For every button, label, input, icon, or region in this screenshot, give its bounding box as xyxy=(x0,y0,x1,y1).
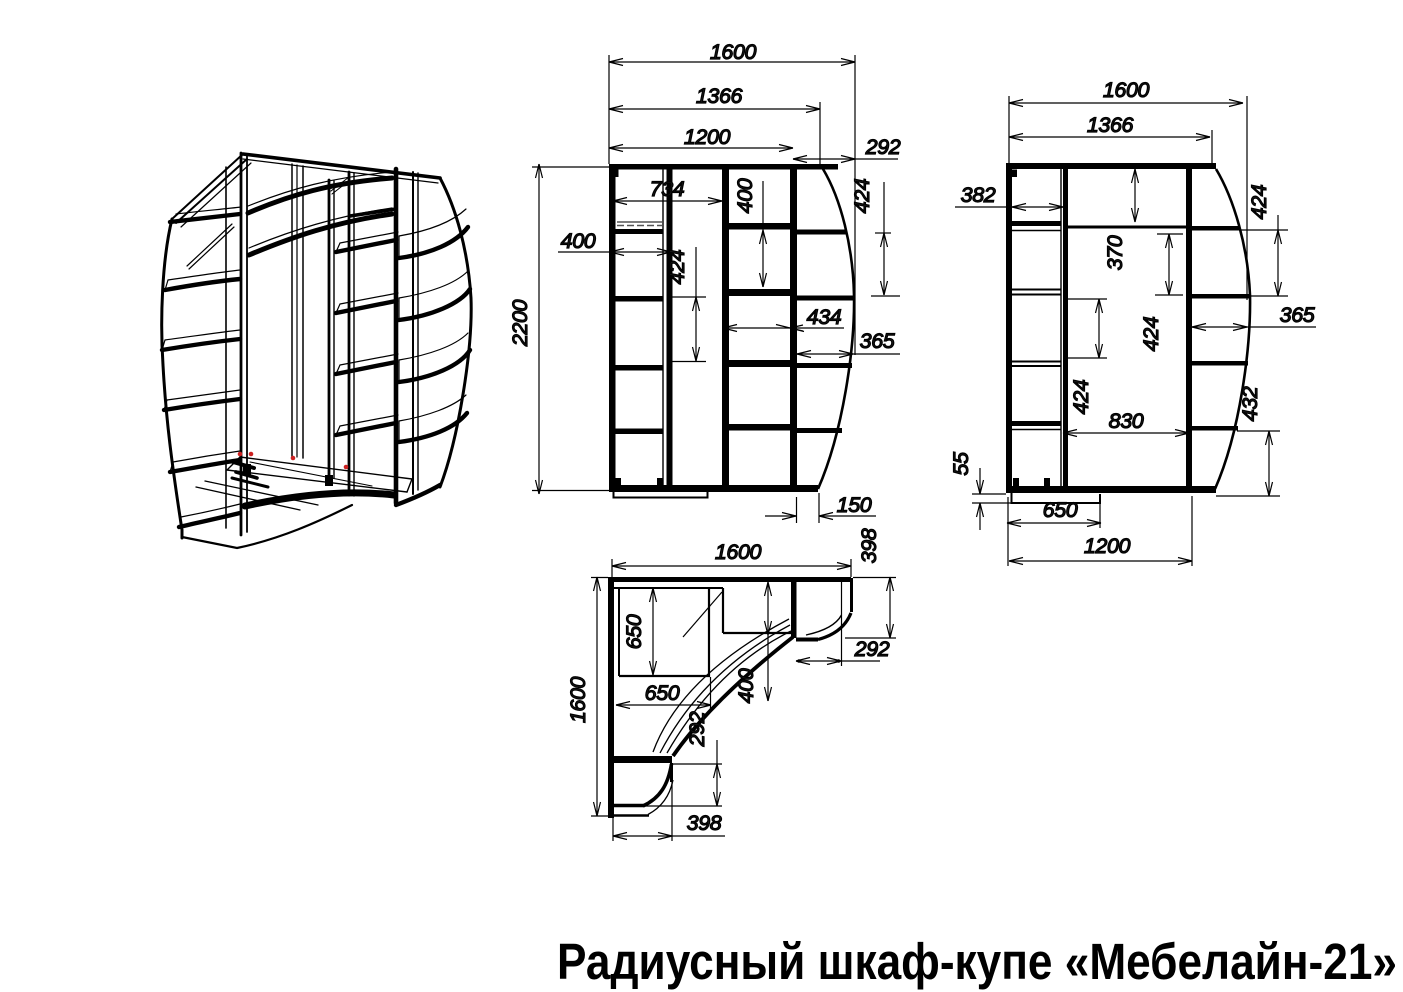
svg-text:400: 400 xyxy=(561,229,596,253)
svg-text:1600: 1600 xyxy=(710,40,757,64)
svg-text:1200: 1200 xyxy=(684,125,731,149)
svg-text:650: 650 xyxy=(645,681,680,705)
svg-text:55: 55 xyxy=(949,451,973,476)
svg-text:1366: 1366 xyxy=(1087,113,1134,137)
svg-text:432: 432 xyxy=(1238,386,1262,421)
svg-text:365: 365 xyxy=(860,329,896,353)
svg-text:Радиусный шкаф-купе «Мебелайн-: Радиусный шкаф-купе «Мебелайн-21» xyxy=(557,933,1397,990)
svg-text:1600: 1600 xyxy=(566,676,590,723)
svg-text:292: 292 xyxy=(685,711,709,747)
svg-text:734: 734 xyxy=(650,177,685,201)
svg-text:1600: 1600 xyxy=(715,540,762,564)
svg-text:1600: 1600 xyxy=(1103,78,1150,102)
svg-text:650: 650 xyxy=(622,614,646,649)
svg-text:424: 424 xyxy=(1247,184,1271,219)
svg-text:434: 434 xyxy=(807,305,842,329)
svg-text:292: 292 xyxy=(865,135,901,159)
svg-text:1200: 1200 xyxy=(1084,534,1131,558)
svg-text:292: 292 xyxy=(854,637,890,661)
svg-text:424: 424 xyxy=(1139,316,1163,351)
svg-text:424: 424 xyxy=(850,178,874,213)
svg-text:2200: 2200 xyxy=(508,299,532,347)
svg-text:424: 424 xyxy=(1069,379,1093,414)
svg-text:830: 830 xyxy=(1109,409,1144,433)
svg-text:400: 400 xyxy=(734,668,758,703)
svg-text:150: 150 xyxy=(837,493,872,517)
svg-text:1366: 1366 xyxy=(696,84,743,108)
svg-text:650: 650 xyxy=(1043,498,1078,522)
svg-text:424: 424 xyxy=(665,249,689,284)
svg-text:400: 400 xyxy=(733,178,757,213)
svg-text:398: 398 xyxy=(687,811,722,835)
svg-text:365: 365 xyxy=(1280,303,1316,327)
svg-text:370: 370 xyxy=(1103,235,1127,270)
svg-text:382: 382 xyxy=(961,183,996,207)
svg-text:398: 398 xyxy=(857,528,881,563)
